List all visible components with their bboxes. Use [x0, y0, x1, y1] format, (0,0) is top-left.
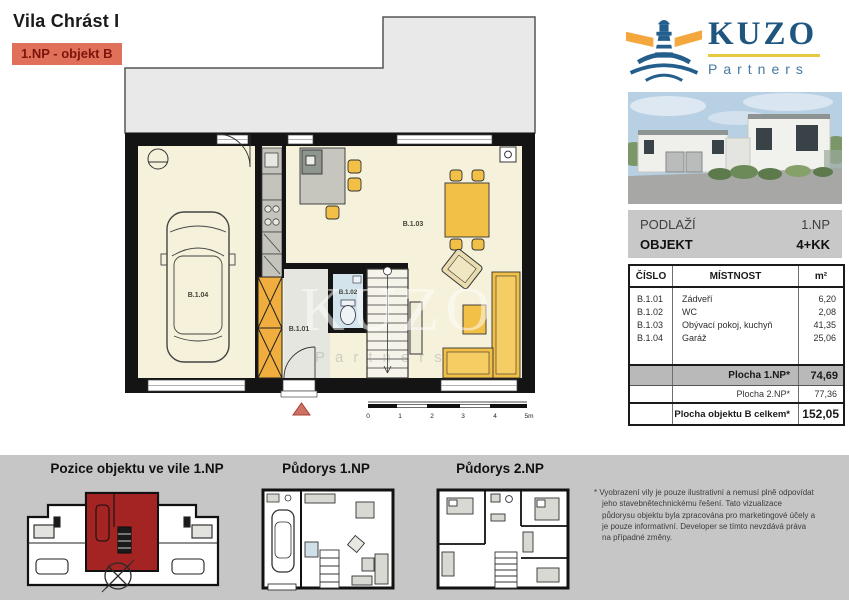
plan1-thumbnail: [258, 480, 398, 594]
house-render-image: [628, 92, 842, 204]
plan2-thumbnail: [433, 480, 573, 594]
boiler-icon: [148, 149, 168, 169]
chair-icon: [450, 170, 462, 181]
vent-icon: [500, 147, 516, 162]
object-value: 4+KK: [796, 237, 830, 252]
scale-tick: 3: [461, 413, 465, 420]
summary-row-2np: Plocha 2.NP* 77,36: [630, 385, 843, 402]
scale-tick: 5m: [524, 413, 533, 420]
scale-tick: 0: [366, 413, 370, 420]
room-label-living: B.1.03: [403, 221, 424, 228]
header-area: m²: [798, 266, 843, 286]
chair-icon: [472, 239, 484, 250]
scale-tick: 2: [430, 413, 434, 420]
brand-subtitle: Partners: [708, 61, 844, 77]
lighthouse-icon: [626, 12, 702, 82]
room-label-wc: B.1.02: [339, 289, 358, 296]
position-thumbnail: [20, 477, 245, 597]
summary-row-1np: Plocha 1.NP* 74,69: [630, 364, 843, 385]
header-room: MÍSTNOST: [672, 266, 798, 286]
header-number: ČÍSLO: [630, 266, 672, 286]
room-ids: B.1.01B.1.02 B.1.03B.1.04: [630, 288, 672, 364]
brand-underline: [708, 54, 820, 57]
brand-name: KUZO: [708, 18, 844, 51]
info-box: PODLAŽÍ 1.NP OBJEKT 4+KK: [628, 210, 842, 258]
summary-row-total: Plocha objektu B celkem* 152,05: [630, 402, 843, 424]
chair-icon: [472, 170, 484, 181]
terrace-outline: [125, 17, 535, 133]
floor-label: PODLAŽÍ: [640, 217, 696, 232]
chair-icon: [450, 239, 462, 250]
stool-icon: [348, 178, 361, 191]
room-label-garage: B.1.04: [188, 292, 209, 299]
position-thumb-title: Pozice objektu ve vile 1.NP: [28, 461, 246, 476]
brand-logo: KUZO Partners: [626, 8, 844, 86]
object-label: OBJEKT: [640, 237, 693, 252]
stool-icon: [326, 206, 339, 219]
room-names: ZádveříWC Obývací pokoj, kuchyňGaráž: [672, 288, 798, 364]
plan2-thumb-title: Půdorys 2.NP: [428, 461, 572, 476]
svg-text:Partners: Partners: [315, 349, 452, 366]
table-body: B.1.01B.1.02 B.1.03B.1.04 ZádveříWC Obýv…: [630, 288, 843, 364]
table-header: ČÍSLO MÍSTNOST m²: [630, 266, 843, 288]
wardrobe-icon: [258, 277, 282, 378]
room-label-entry: B.1.01: [289, 326, 310, 333]
disclaimer-text: * Vyobrazení vily je pouze ilustrativní …: [594, 487, 816, 544]
scale-tick: 1: [398, 413, 402, 420]
rooms-table: ČÍSLO MÍSTNOST m² B.1.01B.1.02 B.1.03B.1…: [628, 264, 845, 426]
stool-icon: [348, 160, 361, 173]
entrance-marker-icon: [293, 403, 310, 415]
scale-tick: 4: [493, 413, 497, 420]
main-floor-plan: 0 1 2 3 4 5m KUZO Partners B.1.04 B.1.01…: [100, 10, 560, 435]
scale-bar: 0 1 2 3 4 5m: [366, 402, 533, 420]
floor-value: 1.NP: [801, 217, 830, 232]
garage-floor: [138, 146, 255, 378]
plan1-thumb-title: Půdorys 1.NP: [254, 461, 398, 476]
svg-text:KUZO: KUZO: [300, 276, 496, 344]
room-areas: 6,202,08 41,3525,06: [798, 288, 843, 364]
kitchen-fixtures-icon: [262, 146, 286, 278]
